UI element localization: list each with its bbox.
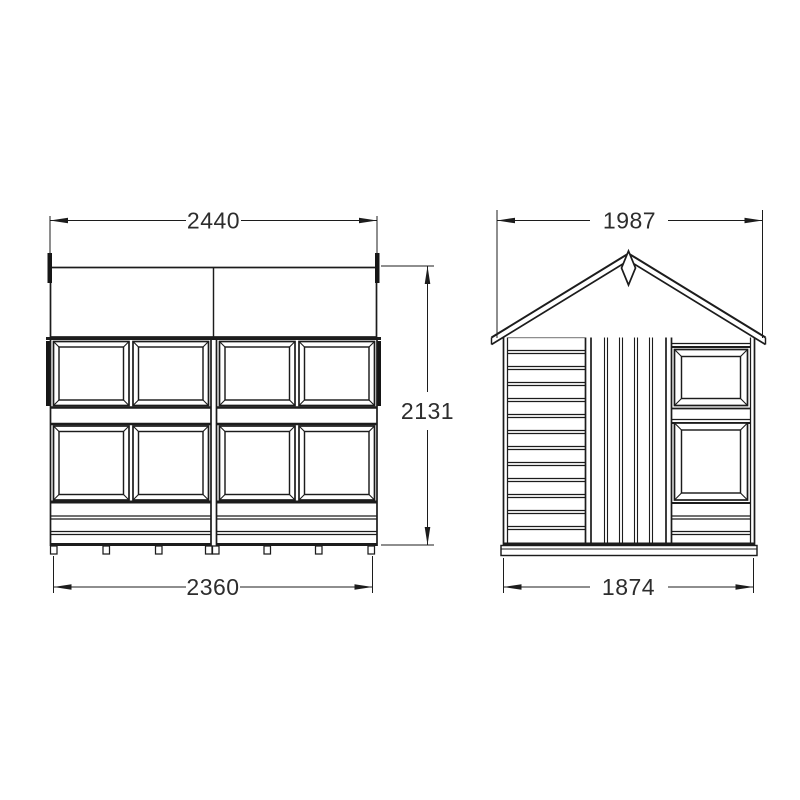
dim-label-side-bottom-width: 1874: [602, 574, 655, 600]
dim-front-height: 2131: [381, 266, 454, 545]
door: [586, 316, 672, 544]
door-plank-lines: [605, 319, 653, 544]
arrowhead-down: [425, 527, 431, 545]
arrowhead-right: [355, 584, 373, 590]
front-lower-panel: [220, 426, 296, 500]
shed-dimension-diagram: 2440 2131 2360: [0, 0, 800, 800]
left-barge-board: [48, 253, 53, 283]
arrowhead-right: [745, 218, 763, 224]
arrowhead-up: [425, 266, 431, 284]
front-window-panel: [133, 342, 209, 406]
dim-label-front-top-width: 2440: [187, 208, 240, 234]
front-lower-panel: [299, 426, 375, 500]
front-panel-row: [54, 426, 375, 500]
arrowhead-left: [50, 218, 68, 224]
side-base-runner: [501, 546, 757, 556]
front-window-panel: [220, 342, 296, 406]
side-elevation: 1987 1874: [492, 208, 766, 601]
front-base-boards: [51, 502, 378, 545]
front-window-panel: [299, 342, 375, 406]
technical-drawing-page: 2440 2131 2360: [0, 0, 800, 800]
side-lower-panel: [675, 423, 748, 500]
arrowhead-left: [54, 584, 72, 590]
dim-front-top-width: 2440: [50, 208, 377, 257]
front-lower-panel: [133, 426, 209, 500]
dim-label-front-height: 2131: [401, 398, 454, 424]
arrowhead-right: [359, 218, 377, 224]
front-floor-bearers: [51, 546, 375, 554]
arrowhead-right: [736, 584, 754, 590]
front-window-row: [54, 342, 375, 406]
side-roof: [492, 251, 766, 345]
side-window: [675, 350, 748, 406]
front-lower-panel: [54, 426, 130, 500]
side-window-bay: [672, 331, 751, 535]
arrowhead-left: [497, 218, 515, 224]
side-wall: [504, 316, 755, 546]
door-jambs: [586, 316, 672, 544]
front-elevation: 2440 2131 2360: [46, 208, 454, 601]
side-cladding-lines: [508, 335, 586, 530]
side-base-board-lines: [672, 516, 751, 535]
dim-front-bottom-width: 2360: [54, 556, 373, 600]
dim-side-bottom-width: 1874: [504, 558, 754, 600]
dim-label-side-top-width: 1987: [603, 208, 656, 234]
arrowhead-left: [504, 584, 522, 590]
right-barge-board: [375, 253, 380, 283]
front-transom-band: [51, 408, 378, 425]
dim-label-front-bottom-width: 2360: [186, 574, 239, 600]
front-window-panel: [54, 342, 130, 406]
front-roof-band: [46, 268, 381, 339]
